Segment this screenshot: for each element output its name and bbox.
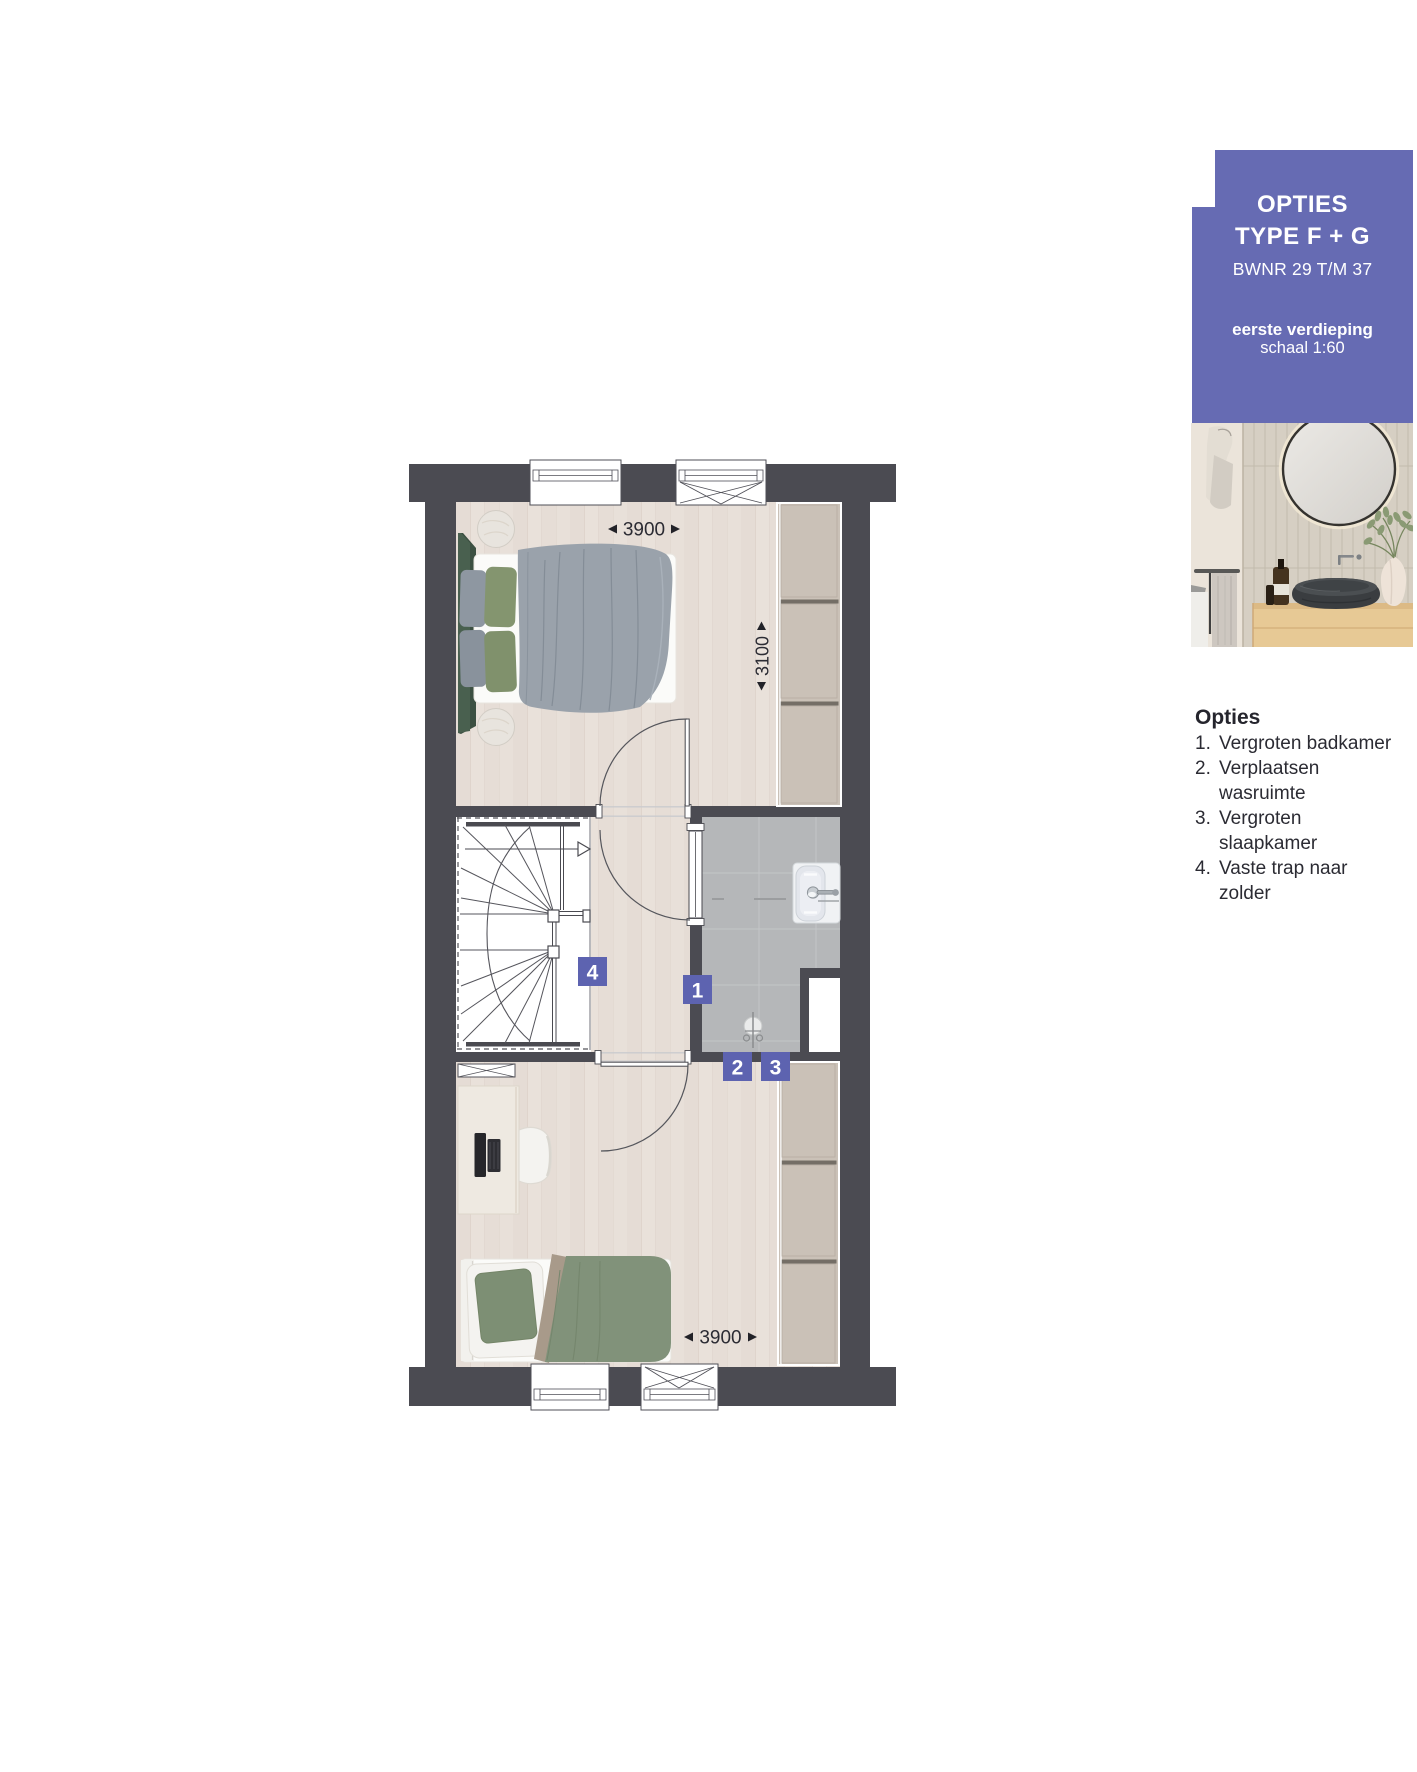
svg-text:3900: 3900 bbox=[623, 520, 665, 541]
svg-text:4: 4 bbox=[587, 962, 599, 985]
svg-text:1: 1 bbox=[692, 980, 704, 1003]
svg-text:3100: 3100 bbox=[753, 636, 773, 676]
svg-text:3900: 3900 bbox=[699, 1328, 741, 1349]
svg-text:3: 3 bbox=[770, 1057, 782, 1080]
svg-text:2: 2 bbox=[732, 1057, 744, 1080]
